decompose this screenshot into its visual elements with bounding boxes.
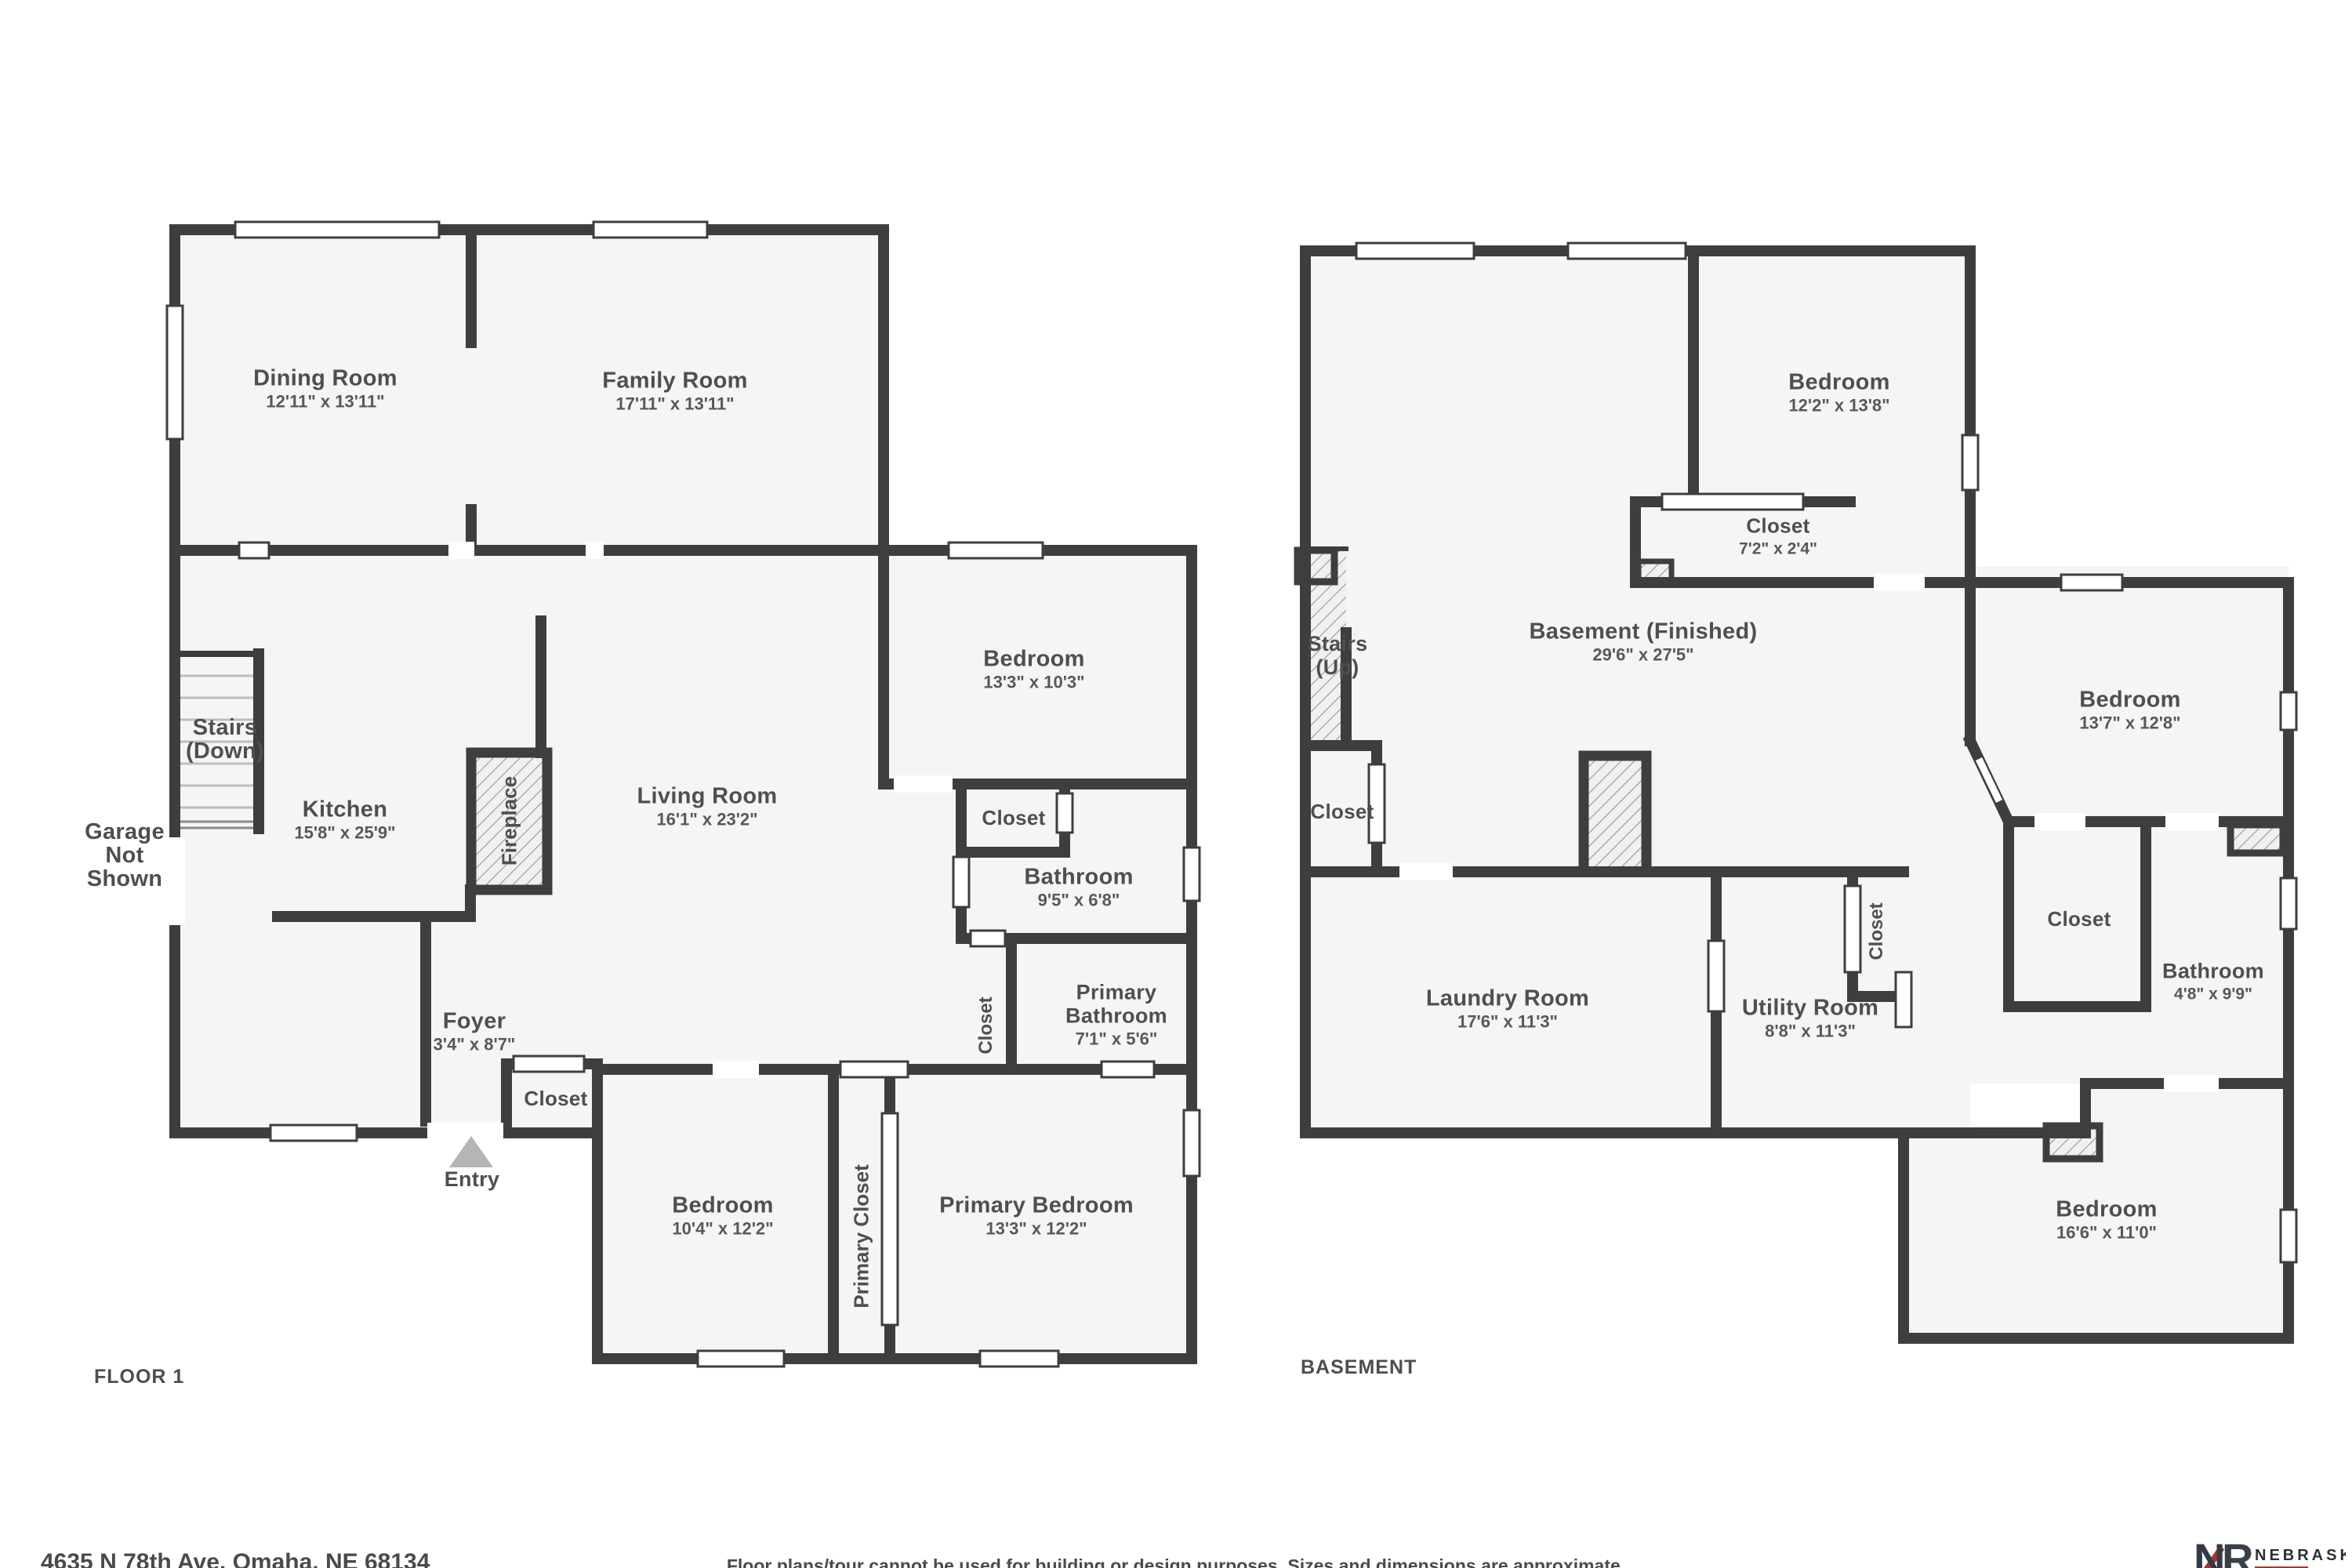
room-label-primary-bathroom: Primary Bathroom 7'1" x 5'6" [1065,981,1167,1049]
room-label-bedroom-top-f1: Bedroom 13'3" x 10'3" [983,648,1084,692]
section-label-floor1: FLOOR 1 [94,1366,184,1388]
logo-name: NEBRASKA [2255,1547,2346,1564]
logo-monogram-n: N [2194,1534,2225,1568]
label-closet-right-b: Closet [2047,907,2111,931]
room-label-bedroom-top-b: Bedroom 12'2" x 13'8" [1788,371,1889,416]
room-label-dining: Dining Room 12'11" x 13'11" [253,367,397,412]
support-post [1584,756,1646,872]
floorplan-drawing [0,0,2352,1568]
room-label-bedroom-bottom-f1: Bedroom 10'4" x 12'2" [672,1194,773,1239]
label-garage-not-shown: Garage Not Shown [85,820,165,891]
room-label-bathroom-b: Bathroom 4'8" x 9'9" [2162,960,2264,1004]
room-label-living: Living Room 16'1" x 23'2" [637,785,778,829]
room-label-family: Family Room 17'11" x 13'11" [602,369,747,414]
nebraska-realty-logo: N R NEBRASKA REALTY [2194,1532,2346,1568]
label-closet-small-f1: Closet [975,996,997,1054]
label-primary-closet: Primary Closet [850,1164,874,1308]
room-label-utility: Utility Room 8'8" x 11'3" [1742,996,1878,1041]
room-label-laundry: Laundry Room 17'6" x 11'3" [1426,987,1589,1032]
disclaimer-text: Floor plans/tour cannot be used for buil… [727,1555,1625,1568]
room-label-bedroom-bottom-b: Bedroom 16'6" x 11'0" [2056,1198,2157,1243]
room-label-closet-top-b: Closet 7'2" x 2'4" [1739,514,1817,559]
room-label-basement-main: Basement (Finished) 29'6" x 27'5" [1530,620,1758,665]
room-label-bedroom-right-b: Bedroom 13'7" x 12'8" [2079,688,2180,733]
room-label-bathroom-f1: Bathroom 9'5" x 6'8" [1024,866,1133,910]
section-label-basement: BASEMENT [1301,1356,1417,1379]
room-label-kitchen: Kitchen 15'8" x 25'9" [294,798,395,843]
room-label-primary-bedroom: Primary Bedroom 13'3" x 12'2" [939,1194,1134,1239]
room-label-stairs-down: Stairs (Down) [186,716,264,763]
label-fireplace: Fireplace [498,776,522,866]
floorplan-canvas: Dining Room 12'11" x 13'11" Family Room … [0,0,2352,1568]
logo-graphic: N R NEBRASKA REALTY [2194,1532,2346,1568]
logo-monogram-r: R [2222,1534,2253,1568]
label-closet-utility: Closet [1866,902,1888,960]
label-closet-stairs: Closet [1310,800,1374,823]
label-closet-foyer: Closet [524,1087,587,1110]
label-closet-hall: Closet [982,806,1045,829]
property-address: 4635 N 78th Ave, Omaha, NE 68134 [41,1549,430,1568]
room-label-stairs-up: Stairs (Up) [1308,632,1368,679]
label-entry: Entry [445,1167,500,1191]
room-label-foyer: Foyer 3'4" x 8'7" [434,1010,516,1054]
